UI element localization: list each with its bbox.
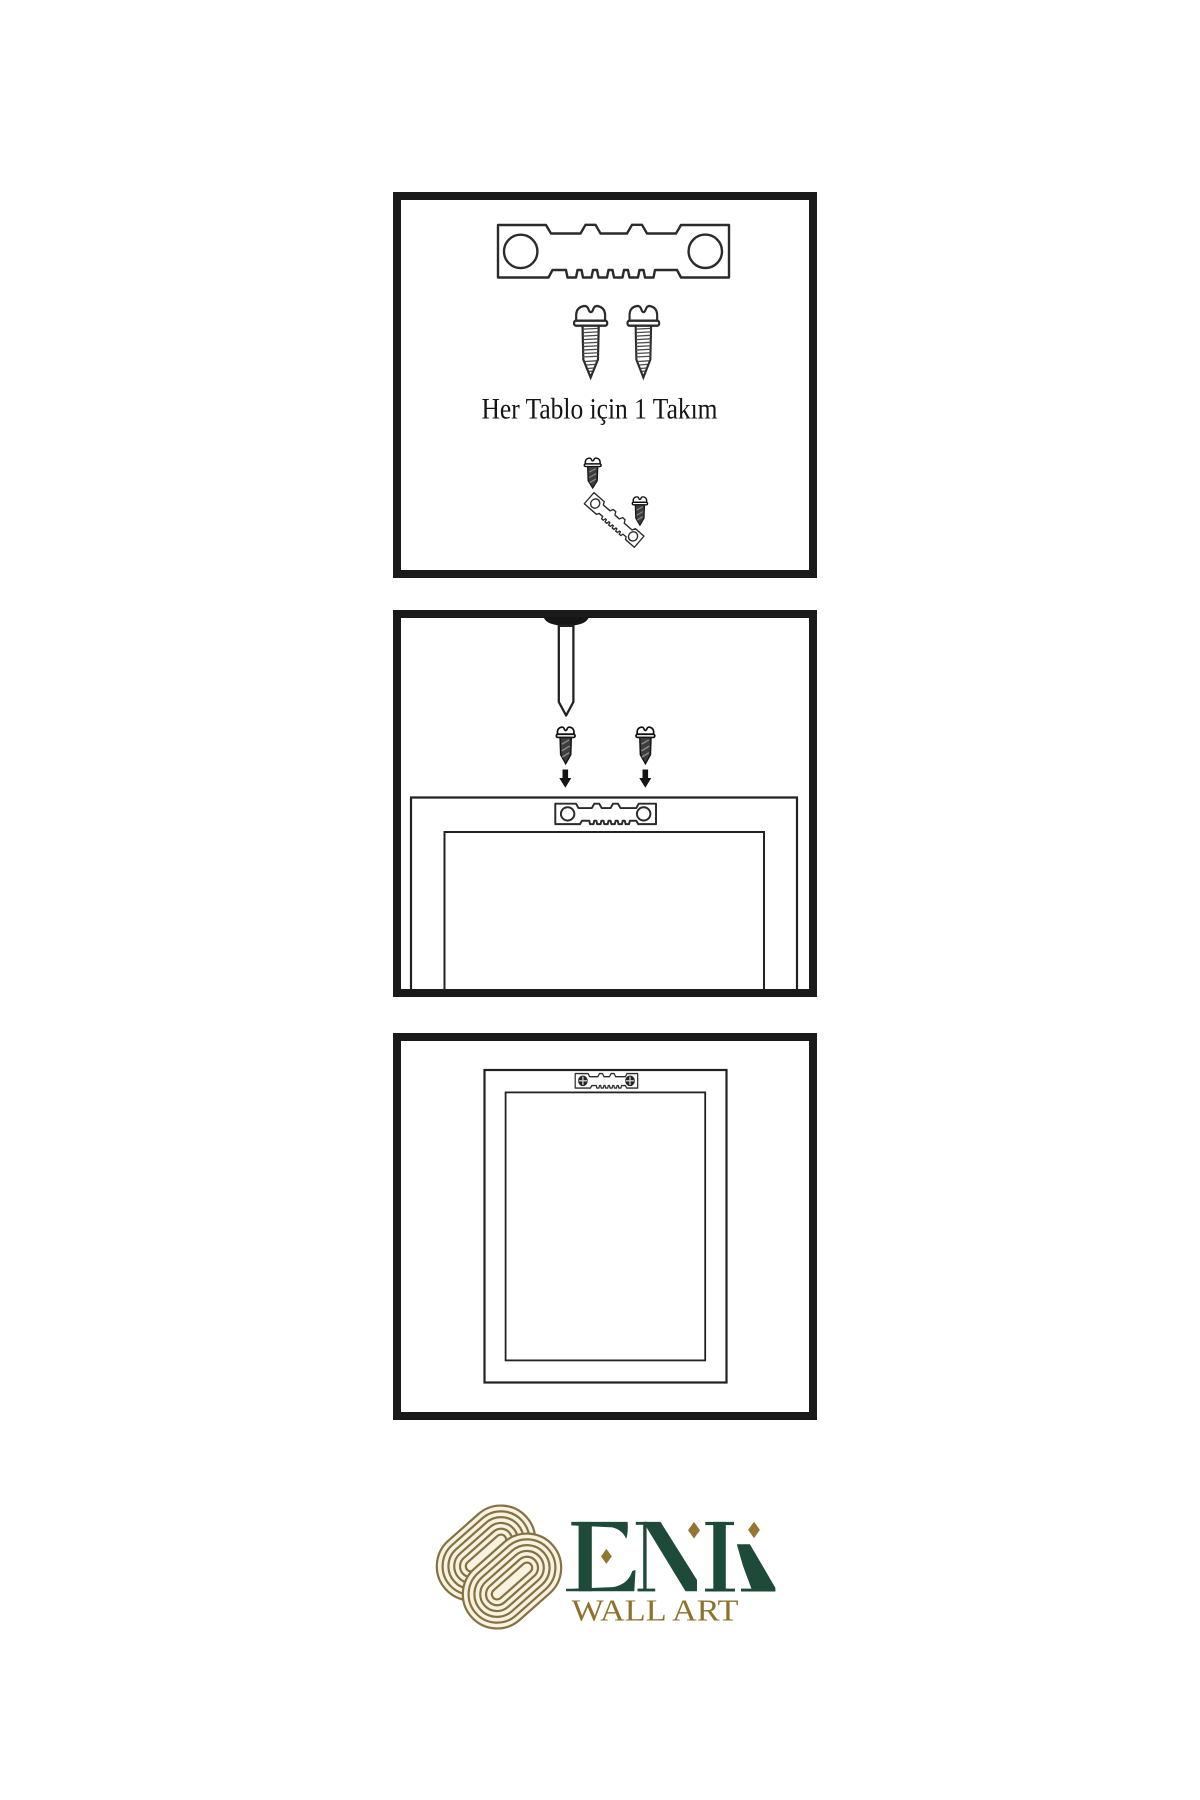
svg-text:WALL ART: WALL ART xyxy=(572,1594,739,1628)
svg-text:Her Tablo için 1 Takım: Her Tablo için 1 Takım xyxy=(482,394,718,426)
